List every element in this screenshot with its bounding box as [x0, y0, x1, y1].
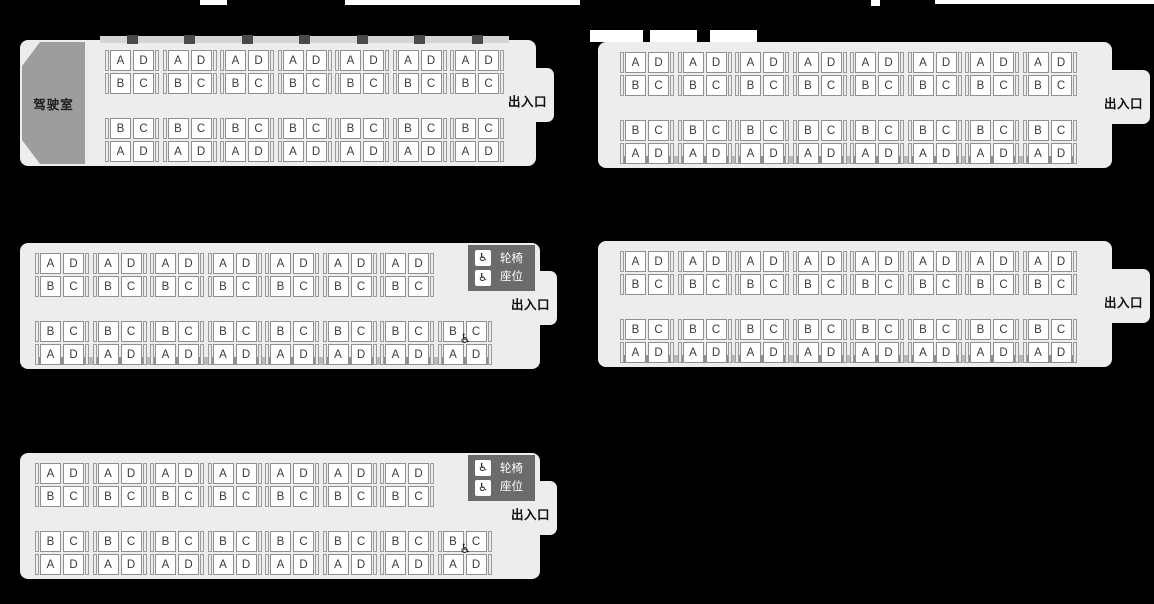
seat-D[interactable]: D — [63, 463, 84, 484]
seat-A[interactable]: A — [98, 344, 119, 365]
seat-D[interactable]: D — [191, 50, 212, 71]
seat-B[interactable]: B — [155, 276, 176, 297]
seat-D[interactable]: D — [993, 143, 1014, 164]
seat-B[interactable]: B — [1028, 319, 1049, 340]
seat-C[interactable]: C — [293, 486, 314, 507]
seat-C[interactable]: C — [936, 319, 957, 340]
seat-B[interactable]: B — [385, 486, 406, 507]
seat-A[interactable]: A — [798, 143, 819, 164]
seat-C[interactable]: C — [63, 321, 84, 342]
seat-C[interactable]: C — [706, 120, 727, 141]
seat-A[interactable]: A — [855, 342, 876, 363]
seat-A[interactable]: A — [213, 344, 234, 365]
seat-B[interactable]: B — [328, 531, 349, 552]
seat-A[interactable]: A — [1028, 143, 1049, 164]
seat-D[interactable]: D — [706, 143, 727, 164]
seat-B[interactable]: B — [213, 321, 234, 342]
seat-D[interactable]: D — [648, 342, 669, 363]
seat-C[interactable]: C — [178, 276, 199, 297]
seat-C[interactable]: C — [408, 321, 429, 342]
seat-A[interactable]: A — [1028, 251, 1049, 272]
seat-A[interactable]: A — [683, 342, 704, 363]
seat-B[interactable]: B — [98, 486, 119, 507]
seat-C[interactable]: C — [351, 531, 372, 552]
seat-A[interactable]: A — [98, 554, 119, 575]
seat-D[interactable]: D — [63, 253, 84, 274]
seat-C[interactable]: C — [236, 321, 257, 342]
seat-D[interactable]: D — [236, 554, 257, 575]
seat-A[interactable]: A — [385, 253, 406, 274]
seat-C[interactable]: C — [478, 73, 499, 94]
seat-C[interactable]: C — [706, 274, 727, 295]
seat-B[interactable]: B — [225, 73, 246, 94]
seat-D[interactable]: D — [248, 50, 269, 71]
seat-C[interactable]: C — [993, 319, 1014, 340]
seat-C[interactable]: C — [421, 118, 442, 139]
seat-D[interactable]: D — [178, 253, 199, 274]
seat-D[interactable]: D — [121, 554, 142, 575]
seat-D[interactable]: D — [821, 251, 842, 272]
seat-C[interactable]: C — [351, 276, 372, 297]
seat-C[interactable]: C — [351, 321, 372, 342]
seat-A[interactable]: A — [855, 143, 876, 164]
seat-A[interactable]: A — [683, 143, 704, 164]
seat-B[interactable]: B — [213, 531, 234, 552]
seat-A[interactable]: A — [740, 143, 761, 164]
seat-C[interactable]: C — [821, 319, 842, 340]
seat-C[interactable]: C — [763, 319, 784, 340]
seat-C[interactable]: C — [178, 486, 199, 507]
seat-B[interactable]: B — [740, 75, 761, 96]
seat-B[interactable]: B — [913, 274, 934, 295]
seat-C[interactable]: C — [121, 276, 142, 297]
seat-A[interactable]: A — [213, 463, 234, 484]
seat-D[interactable]: D — [878, 251, 899, 272]
seat-D[interactable]: D — [936, 342, 957, 363]
seat-C[interactable]: C — [648, 120, 669, 141]
seat-B[interactable]: B — [913, 75, 934, 96]
seat-B[interactable]: B — [155, 321, 176, 342]
seat-A[interactable]: A — [110, 50, 131, 71]
seat-C[interactable]: C — [936, 120, 957, 141]
seat-D[interactable]: D — [236, 344, 257, 365]
seat-B[interactable]: B — [110, 73, 131, 94]
seat-C[interactable]: C — [936, 274, 957, 295]
seat-C[interactable]: C — [408, 531, 429, 552]
seat-B[interactable]: B — [328, 486, 349, 507]
seat-B[interactable]: B — [855, 274, 876, 295]
seat-A[interactable]: A — [225, 50, 246, 71]
seat-D[interactable]: D — [293, 463, 314, 484]
seat-C[interactable]: C — [63, 486, 84, 507]
seat-A[interactable]: A — [340, 141, 361, 162]
seat-A[interactable]: A — [213, 554, 234, 575]
seat-D[interactable]: D — [363, 50, 384, 71]
seat-C[interactable]: C — [121, 486, 142, 507]
seat-D[interactable]: D — [706, 52, 727, 73]
seat-D[interactable]: D — [121, 344, 142, 365]
seat-B[interactable]: B — [625, 274, 646, 295]
seat-D[interactable]: D — [293, 253, 314, 274]
seat-D[interactable]: D — [408, 253, 429, 274]
seat-B[interactable]: B — [1028, 75, 1049, 96]
seat-B[interactable]: B — [970, 274, 991, 295]
seat-C[interactable]: C — [821, 274, 842, 295]
seat-C[interactable]: C — [706, 319, 727, 340]
seat-D[interactable]: D — [993, 52, 1014, 73]
seat-C[interactable]: C — [191, 118, 212, 139]
seat-A[interactable]: A — [970, 342, 991, 363]
seat-B[interactable]: B — [270, 321, 291, 342]
seat-D[interactable]: D — [878, 52, 899, 73]
seat-C[interactable]: C — [306, 118, 327, 139]
seat-A[interactable]: A — [913, 251, 934, 272]
seat-B[interactable]: B — [855, 75, 876, 96]
seat-C[interactable]: C — [121, 531, 142, 552]
seat-D[interactable]: D — [306, 141, 327, 162]
seat-A[interactable]: A — [970, 52, 991, 73]
seat-D[interactable]: D — [648, 251, 669, 272]
seat-C[interactable]: C — [133, 73, 154, 94]
seat-C[interactable]: C — [993, 120, 1014, 141]
seat-D[interactable]: D — [191, 141, 212, 162]
seat-C[interactable]: C — [821, 120, 842, 141]
seat-A[interactable]: A — [155, 253, 176, 274]
seat-A[interactable]: A — [398, 50, 419, 71]
seat-B[interactable]: B — [855, 319, 876, 340]
seat-A[interactable]: A — [740, 342, 761, 363]
seat-C[interactable]: C — [1051, 75, 1072, 96]
seat-D[interactable]: D — [408, 463, 429, 484]
seat-D[interactable]: D — [1051, 251, 1072, 272]
seat-D[interactable]: D — [121, 253, 142, 274]
seat-C[interactable]: C — [648, 274, 669, 295]
seat-A[interactable]: A — [155, 463, 176, 484]
seat-A[interactable]: A — [98, 463, 119, 484]
seat-D[interactable]: D — [763, 251, 784, 272]
seat-B[interactable]: B — [798, 319, 819, 340]
seat-C[interactable]: C — [293, 531, 314, 552]
seat-B[interactable]: B — [385, 531, 406, 552]
seat-A[interactable]: A — [283, 50, 304, 71]
seat-A[interactable]: A — [740, 52, 761, 73]
seat-D[interactable]: D — [648, 143, 669, 164]
seat-A[interactable]: A — [385, 344, 406, 365]
seat-B[interactable]: B — [98, 531, 119, 552]
seat-B[interactable]: B — [98, 321, 119, 342]
seat-C[interactable]: C — [763, 274, 784, 295]
seat-C[interactable]: C — [236, 531, 257, 552]
seat-A[interactable]: A — [798, 52, 819, 73]
seat-B[interactable]: B — [970, 319, 991, 340]
seat-B[interactable]: B — [40, 531, 61, 552]
seat-B[interactable]: B — [683, 120, 704, 141]
seat-C[interactable]: C — [178, 531, 199, 552]
seat-D[interactable]: D — [421, 141, 442, 162]
seat-B[interactable]: B — [740, 319, 761, 340]
seat-A[interactable]: A — [40, 344, 61, 365]
seat-A[interactable]: A — [913, 52, 934, 73]
seat-B[interactable]: B — [625, 120, 646, 141]
seat-A[interactable]: A — [213, 253, 234, 274]
seat-B[interactable]: B — [270, 486, 291, 507]
seat-B[interactable]: B — [168, 73, 189, 94]
seat-D[interactable]: D — [878, 342, 899, 363]
seat-D[interactable]: D — [178, 344, 199, 365]
seat-B[interactable]: B — [155, 486, 176, 507]
seat-C[interactable]: C — [936, 75, 957, 96]
seat-B[interactable]: B — [270, 276, 291, 297]
seat-D[interactable]: D — [133, 50, 154, 71]
seat-A[interactable]: A — [625, 342, 646, 363]
seat-D[interactable]: D — [706, 342, 727, 363]
seat-B[interactable]: B — [328, 276, 349, 297]
seat-D[interactable]: D — [351, 463, 372, 484]
seat-D[interactable]: D — [363, 141, 384, 162]
seat-A[interactable]: A — [385, 554, 406, 575]
seat-B[interactable]: B — [1028, 120, 1049, 141]
seat-B[interactable]: B — [328, 321, 349, 342]
seat-B[interactable]: B — [40, 321, 61, 342]
seat-B[interactable]: B — [798, 75, 819, 96]
seat-A[interactable]: A — [328, 253, 349, 274]
seat-D[interactable]: D — [478, 50, 499, 71]
seat-D[interactable]: D — [466, 344, 487, 365]
seat-D[interactable]: D — [421, 50, 442, 71]
seat-D[interactable]: D — [821, 342, 842, 363]
seat-B[interactable]: B — [98, 276, 119, 297]
seat-D[interactable]: D — [936, 143, 957, 164]
seat-A[interactable]: A — [155, 344, 176, 365]
seat-D[interactable]: D — [293, 344, 314, 365]
seat-C[interactable]: C — [821, 75, 842, 96]
seat-D[interactable]: D — [63, 554, 84, 575]
seat-B[interactable]: B — [283, 118, 304, 139]
seat-A[interactable]: A — [855, 52, 876, 73]
seat-B[interactable]: B — [625, 75, 646, 96]
seat-A[interactable]: A — [385, 463, 406, 484]
seat-C[interactable]: C — [706, 75, 727, 96]
seat-B[interactable]: B — [385, 321, 406, 342]
seat-B[interactable]: B — [225, 118, 246, 139]
seat-C[interactable]: C — [408, 486, 429, 507]
seat-D[interactable]: D — [236, 253, 257, 274]
seat-C[interactable]: C — [121, 321, 142, 342]
seat-C[interactable]: C — [236, 486, 257, 507]
seat-A[interactable]: A — [1028, 342, 1049, 363]
seat-A[interactable]: A — [625, 143, 646, 164]
seat-B[interactable]: B — [283, 73, 304, 94]
seat-A[interactable]: A — [913, 143, 934, 164]
seat-A[interactable]: A — [855, 251, 876, 272]
seat-D[interactable]: D — [293, 554, 314, 575]
seat-D[interactable]: D — [821, 52, 842, 73]
seat-D[interactable]: D — [306, 50, 327, 71]
seat-D[interactable]: D — [1051, 143, 1072, 164]
seat-A[interactable]: A — [443, 344, 464, 365]
seat-D[interactable]: D — [1051, 342, 1072, 363]
seat-B[interactable]: B — [970, 75, 991, 96]
seat-D[interactable]: D — [821, 143, 842, 164]
seat-B[interactable]: B — [213, 486, 234, 507]
seat-B[interactable]: B — [110, 118, 131, 139]
seat-C[interactable]: C — [1051, 274, 1072, 295]
seat-A[interactable]: A — [98, 253, 119, 274]
seat-B[interactable]: B — [683, 274, 704, 295]
seat-D[interactable]: D — [878, 143, 899, 164]
seat-D[interactable]: D — [706, 251, 727, 272]
seat-A[interactable]: A — [328, 463, 349, 484]
seat-C[interactable]: C — [878, 319, 899, 340]
seat-B[interactable]: B — [340, 118, 361, 139]
seat-A[interactable]: A — [168, 50, 189, 71]
seat-C[interactable]: C — [763, 120, 784, 141]
seat-A[interactable]: A — [683, 251, 704, 272]
seat-A[interactable]: A — [283, 141, 304, 162]
seat-D[interactable]: D — [248, 141, 269, 162]
seat-C[interactable]: C — [878, 75, 899, 96]
seat-B[interactable]: B — [398, 118, 419, 139]
seat-B[interactable]: B — [740, 274, 761, 295]
seat-D[interactable]: D — [178, 463, 199, 484]
seat-D[interactable]: D — [993, 251, 1014, 272]
seat-A[interactable]: A — [398, 141, 419, 162]
seat-A[interactable]: A — [625, 52, 646, 73]
seat-C[interactable]: C — [878, 274, 899, 295]
seat-A[interactable]: A — [443, 554, 464, 575]
seat-B[interactable]: B — [913, 319, 934, 340]
seat-A[interactable]: A — [110, 141, 131, 162]
seat-A[interactable]: A — [328, 344, 349, 365]
seat-C[interactable]: C — [248, 118, 269, 139]
seat-C[interactable]: C — [648, 319, 669, 340]
seat-C[interactable]: C — [191, 73, 212, 94]
seat-D[interactable]: D — [993, 342, 1014, 363]
seat-D[interactable]: D — [133, 141, 154, 162]
seat-A[interactable]: A — [683, 52, 704, 73]
seat-C[interactable]: C — [478, 118, 499, 139]
seat-A[interactable]: A — [625, 251, 646, 272]
seat-D[interactable]: D — [763, 52, 784, 73]
seat-A[interactable]: A — [40, 554, 61, 575]
seat-D[interactable]: D — [763, 143, 784, 164]
seat-C[interactable]: C — [133, 118, 154, 139]
seat-C[interactable]: C — [363, 118, 384, 139]
seat-C[interactable]: C — [1051, 120, 1072, 141]
seat-D[interactable]: D — [936, 52, 957, 73]
seat-B[interactable]: B — [40, 486, 61, 507]
seat-D[interactable]: D — [351, 253, 372, 274]
seat-B[interactable]: B — [683, 75, 704, 96]
seat-A[interactable]: A — [270, 463, 291, 484]
seat-B[interactable]: B — [213, 276, 234, 297]
seat-A[interactable]: A — [270, 344, 291, 365]
seat-C[interactable]: C — [236, 276, 257, 297]
seat-A[interactable]: A — [340, 50, 361, 71]
seat-B[interactable]: B — [740, 120, 761, 141]
seat-B[interactable]: B — [398, 73, 419, 94]
seat-C[interactable]: C — [421, 73, 442, 94]
seat-D[interactable]: D — [763, 342, 784, 363]
seat-C[interactable]: C — [648, 75, 669, 96]
seat-D[interactable]: D — [408, 554, 429, 575]
seat-A[interactable]: A — [40, 253, 61, 274]
seat-D[interactable]: D — [466, 554, 487, 575]
seat-C[interactable]: C — [248, 73, 269, 94]
seat-B[interactable]: B — [340, 73, 361, 94]
seat-A[interactable]: A — [1028, 52, 1049, 73]
seat-B[interactable]: B — [155, 531, 176, 552]
seat-A[interactable]: A — [155, 554, 176, 575]
seat-A[interactable]: A — [168, 141, 189, 162]
seat-A[interactable]: A — [740, 251, 761, 272]
seat-B[interactable]: B — [625, 319, 646, 340]
seat-C[interactable]: C — [293, 321, 314, 342]
seat-B[interactable]: B — [1028, 274, 1049, 295]
seat-A[interactable]: A — [270, 554, 291, 575]
seat-B[interactable]: B — [798, 274, 819, 295]
seat-C[interactable]: C — [351, 486, 372, 507]
seat-B[interactable]: B — [455, 118, 476, 139]
seat-A[interactable]: A — [970, 251, 991, 272]
seat-D[interactable]: D — [408, 344, 429, 365]
seat-D[interactable]: D — [121, 463, 142, 484]
seat-B[interactable]: B — [798, 120, 819, 141]
seat-C[interactable]: C — [408, 276, 429, 297]
seat-A[interactable]: A — [455, 141, 476, 162]
seat-C[interactable]: C — [878, 120, 899, 141]
seat-D[interactable]: D — [1051, 52, 1072, 73]
seat-B[interactable]: B — [385, 276, 406, 297]
seat-C[interactable]: C — [763, 75, 784, 96]
seat-D[interactable]: D — [478, 141, 499, 162]
seat-A[interactable]: A — [970, 143, 991, 164]
seat-B[interactable]: B — [913, 120, 934, 141]
seat-C[interactable]: C — [63, 531, 84, 552]
seat-B[interactable]: B — [168, 118, 189, 139]
seat-A[interactable]: A — [328, 554, 349, 575]
seat-C[interactable]: C — [306, 73, 327, 94]
seat-D[interactable]: D — [236, 463, 257, 484]
seat-B[interactable]: B — [455, 73, 476, 94]
seat-A[interactable]: A — [40, 463, 61, 484]
seat-C[interactable]: C — [993, 274, 1014, 295]
seat-C[interactable]: C — [293, 276, 314, 297]
seat-A[interactable]: A — [913, 342, 934, 363]
seat-B[interactable]: B — [683, 319, 704, 340]
seat-B[interactable]: B — [970, 120, 991, 141]
seat-A[interactable]: A — [798, 251, 819, 272]
seat-A[interactable]: A — [225, 141, 246, 162]
seat-B[interactable]: B — [270, 531, 291, 552]
seat-B[interactable]: B — [855, 120, 876, 141]
seat-A[interactable]: A — [455, 50, 476, 71]
seat-C[interactable]: C — [63, 276, 84, 297]
seat-B[interactable]: B — [40, 276, 61, 297]
seat-C[interactable]: C — [178, 321, 199, 342]
seat-C[interactable]: C — [993, 75, 1014, 96]
seat-D[interactable]: D — [936, 251, 957, 272]
seat-D[interactable]: D — [351, 554, 372, 575]
seat-C[interactable]: C — [1051, 319, 1072, 340]
seat-D[interactable]: D — [351, 344, 372, 365]
seat-A[interactable]: A — [270, 253, 291, 274]
seat-A[interactable]: A — [798, 342, 819, 363]
seat-D[interactable]: D — [648, 52, 669, 73]
seat-D[interactable]: D — [178, 554, 199, 575]
seat-C[interactable]: C — [363, 73, 384, 94]
seat-D[interactable]: D — [63, 344, 84, 365]
